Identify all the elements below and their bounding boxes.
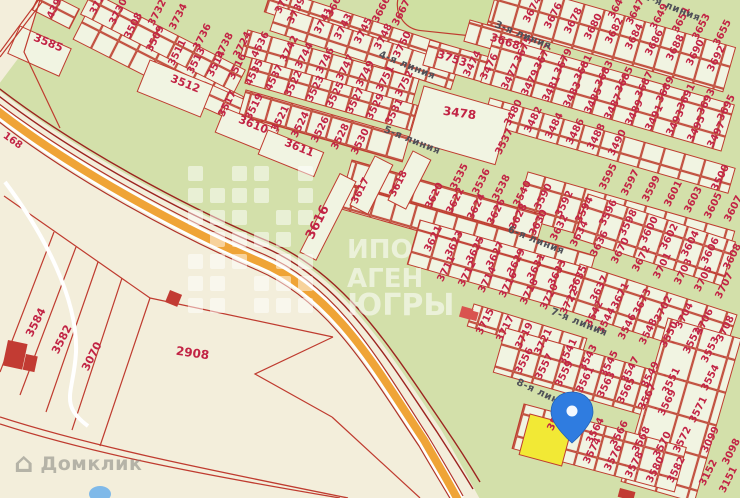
watermark-dot [298,188,313,203]
watermark-dot [188,166,203,181]
watermark-dot [254,232,269,247]
watermark-dot [276,210,291,225]
watermark-dot [210,210,225,225]
cadastral-map: ИПОАГЕНЮГРЫ 4393585372373035083732350937… [0,0,740,498]
watermark-dot [232,188,247,203]
watermark-text-line: ЮГРЫ [347,288,454,323]
watermark-dot [298,276,313,291]
watermark-dot [254,298,269,313]
watermark-dot [210,188,225,203]
watermark-dot [210,276,225,291]
watermark-dot [188,254,203,269]
watermark-dot [276,276,291,291]
watermark-dot [276,298,291,313]
watermark-dot [210,254,225,269]
map-canvas[interactable]: ИПОАГЕНЮГРЫ 4393585372373035083732350937… [0,0,740,498]
watermark-dot [188,276,203,291]
watermark-dot [276,232,291,247]
watermark-dot [210,232,225,247]
watermark-dot [232,210,247,225]
watermark-dot [188,188,203,203]
watermark-dot [232,232,247,247]
watermark-dot [254,166,269,181]
watermark-dot [254,276,269,291]
watermark-dot [188,298,203,313]
watermark-text-line: ИПО [347,235,413,265]
watermark-dot [276,254,291,269]
pin-center-dot [567,406,578,417]
watermark-dot [232,254,247,269]
watermark-dot [298,166,313,181]
watermark-dot [210,298,225,313]
watermark-dot [232,166,247,181]
watermark-dot [298,298,313,313]
watermark-dot [254,188,269,203]
watermark-dot [298,254,313,269]
watermark-dot [188,210,203,225]
